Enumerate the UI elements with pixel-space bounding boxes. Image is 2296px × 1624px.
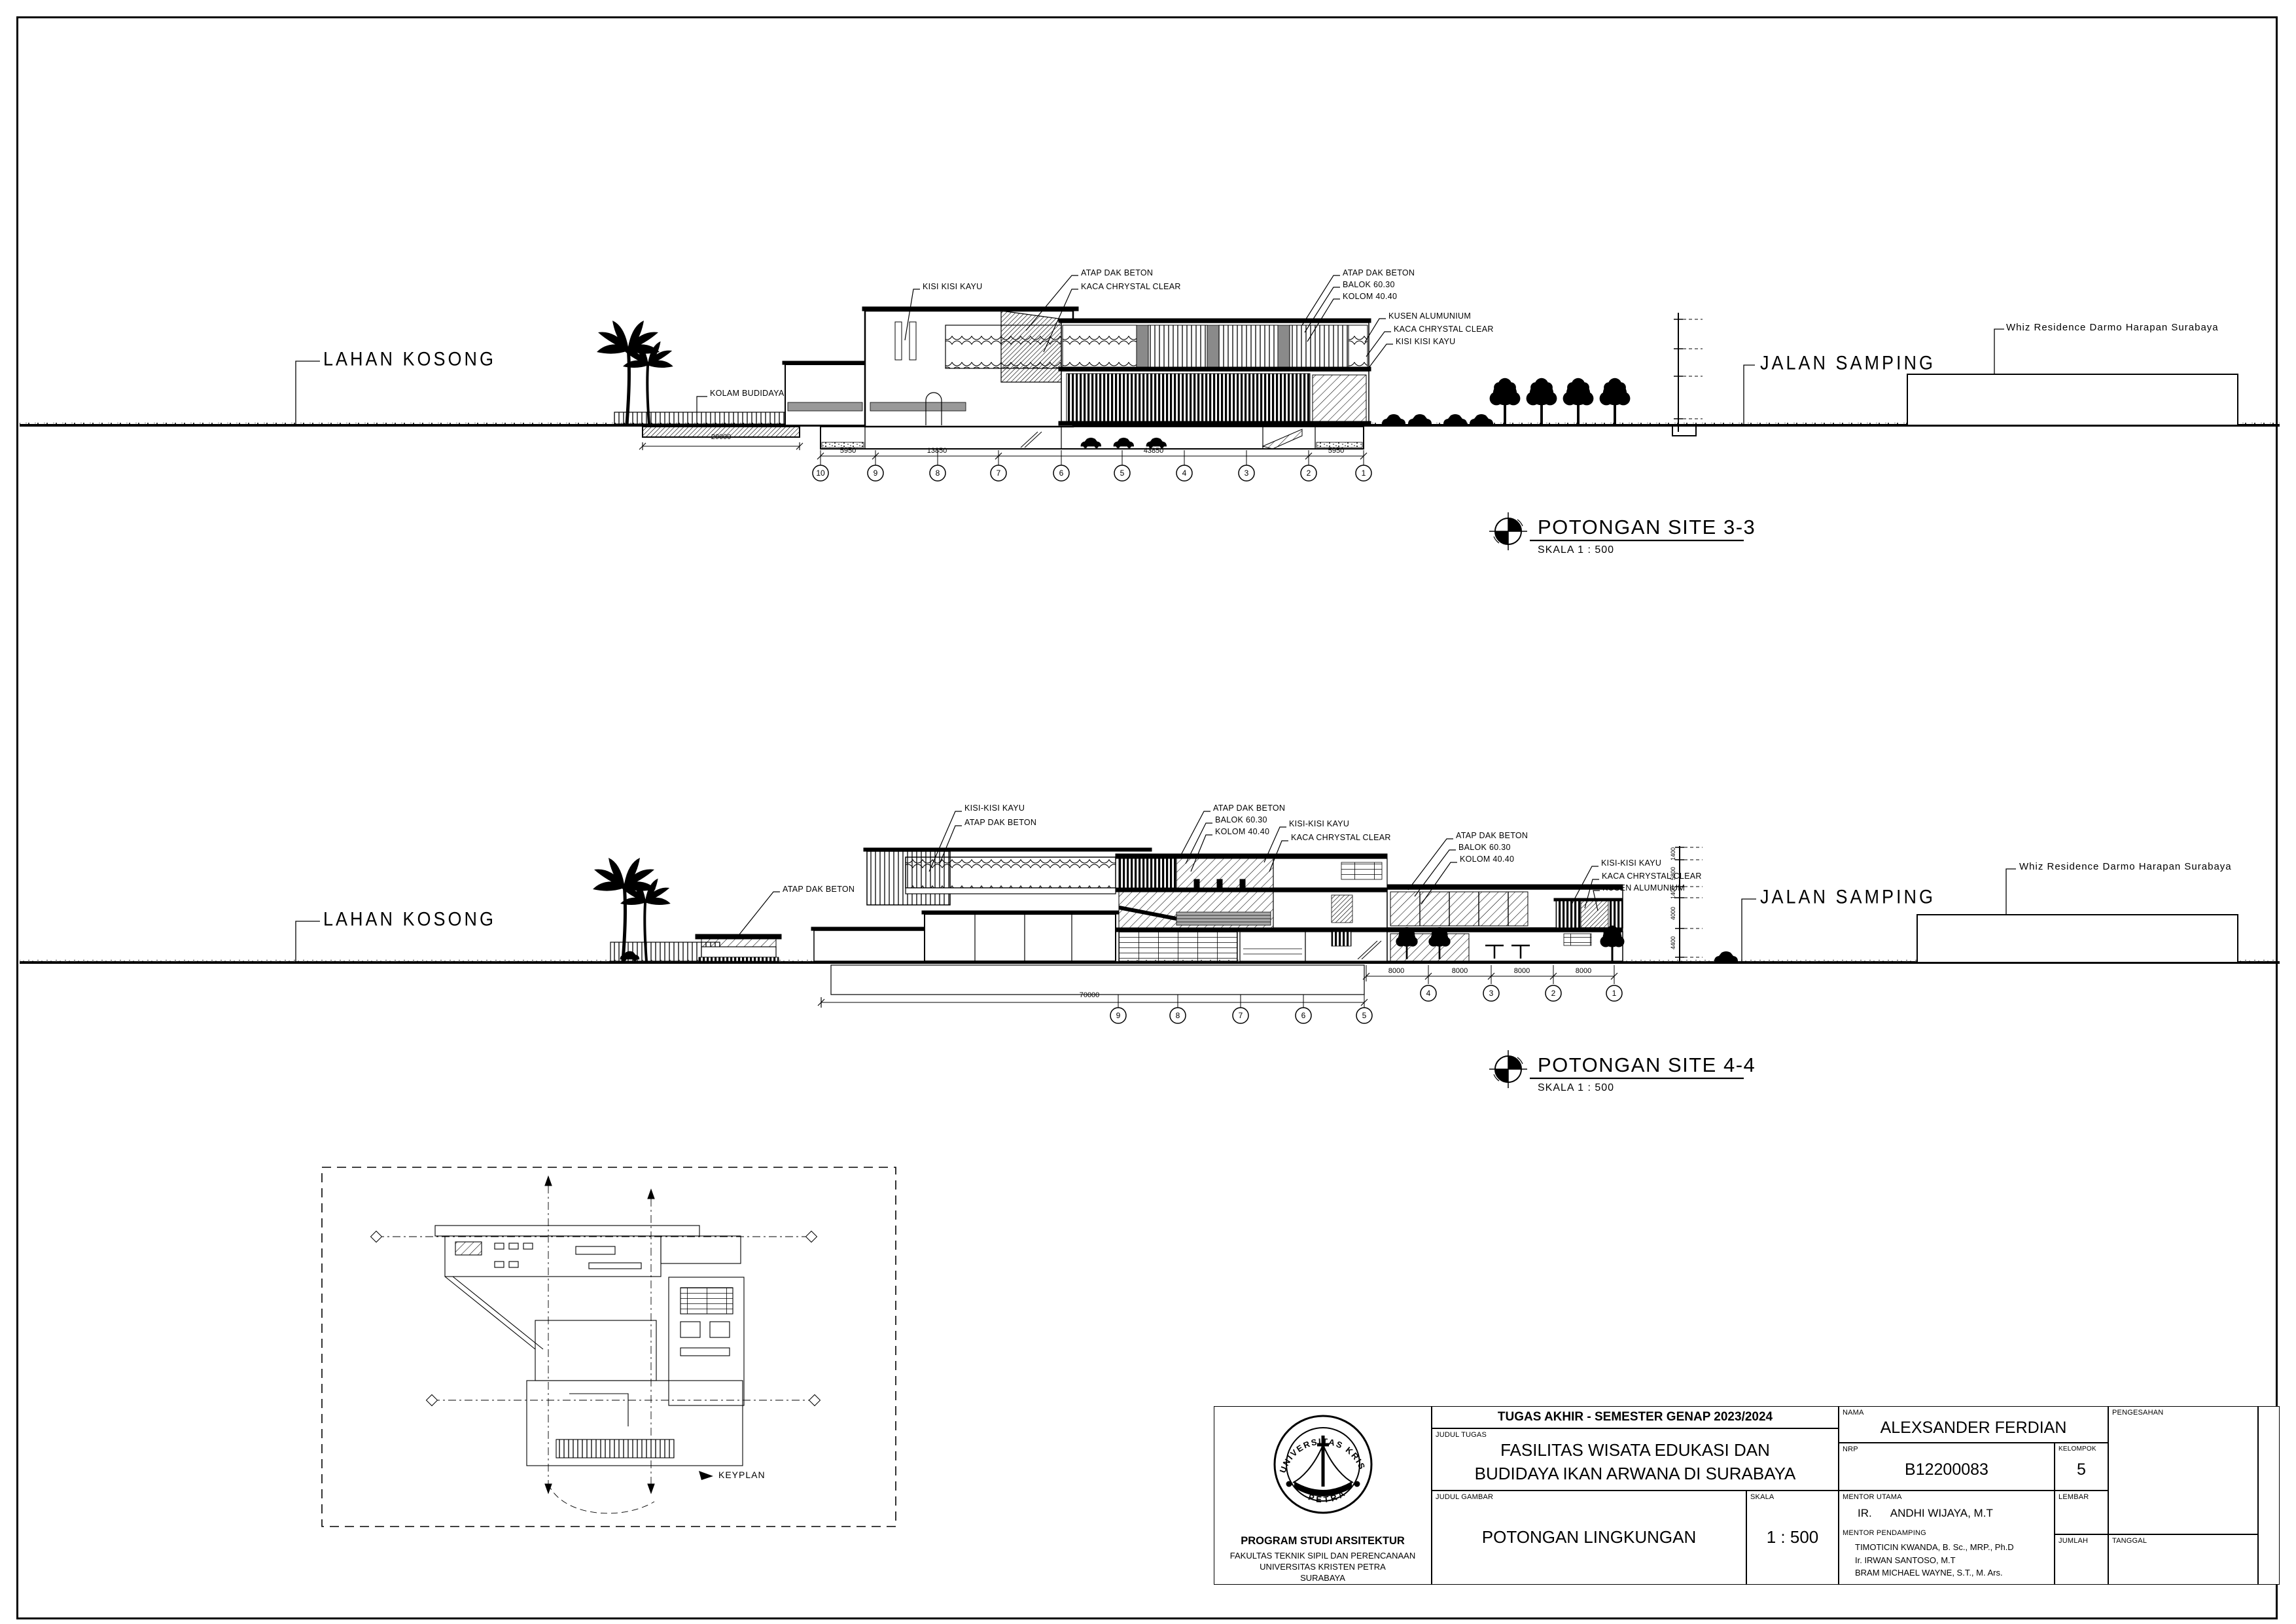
judul-tugas-line1: FASILITAS WISATA EDUKASI DAN xyxy=(1432,1440,1838,1460)
dim-33-4: 5950 xyxy=(1328,447,1344,455)
mentor-3: BRAM MICHAEL WAYNE, S.T., M. Ars. xyxy=(1855,1568,2003,1578)
svg-text:7: 7 xyxy=(997,468,1001,478)
dim-44-r4: 8000 xyxy=(1576,967,1591,975)
svg-text:4400: 4400 xyxy=(1670,936,1676,949)
mentor-cell: MENTOR UTAMA IR.ANDHI WIJAYA, M.T MENTOR… xyxy=(1839,1491,2055,1585)
nama-label: NAMA xyxy=(1843,1409,1864,1417)
label-lahan-kosong-33: LAHAN KOSONG xyxy=(323,349,496,370)
building-33 xyxy=(783,307,1371,449)
section-33-scale: SKALA 1 : 500 xyxy=(1538,544,1614,556)
callout-atap-pavilion: ATAP DAK BETON xyxy=(783,885,855,894)
pengesahan-label: PENGESAHAN xyxy=(2112,1409,2163,1417)
callout-balok-44M: BALOK 60.30 xyxy=(1215,815,1267,824)
tanggal-cell: TANGGAL xyxy=(2108,1534,2258,1585)
grid-numbers-44-left: 9 8 7 6 5 xyxy=(1116,1011,1367,1020)
dim-44-left: 70000 xyxy=(1080,991,1100,999)
svg-text:4: 4 xyxy=(1182,468,1187,478)
svg-text:1: 1 xyxy=(1612,989,1617,998)
label-jalan-samping-44: JALAN SAMPING xyxy=(1760,887,1935,908)
north-compass-33 xyxy=(1489,512,1527,550)
callout-balok-44R: BALOK 60.30 xyxy=(1458,843,1511,852)
svg-text:8: 8 xyxy=(1176,1011,1180,1020)
svg-text:9: 9 xyxy=(1116,1011,1121,1020)
kelompok-label: KELOMPOK xyxy=(2058,1445,2096,1453)
callout-kisi-44M2: KISI-KISI KAYU xyxy=(1289,819,1349,828)
svg-text:3: 3 xyxy=(1489,989,1494,998)
keyplan-drawing xyxy=(322,1167,896,1527)
judul-tugas-cell: JUDUL TUGAS FASILITAS WISATA EDUKASI DAN… xyxy=(1432,1428,1839,1491)
institution-universitas: UNIVERSITAS KRISTEN PETRA xyxy=(1214,1562,1431,1572)
section-44-scale: SKALA 1 : 500 xyxy=(1538,1082,1614,1094)
svg-text:7: 7 xyxy=(1239,1011,1243,1020)
kelompok-value: 5 xyxy=(2055,1460,2108,1479)
whiz-building-44 xyxy=(1917,915,2238,962)
right-strip-cell xyxy=(2258,1406,2280,1585)
dim-33-3: 43850 xyxy=(1144,447,1164,455)
grid-numbers-44-right: 4 3 2 1 xyxy=(1426,989,1617,998)
callout-atap-dak-beton-33b: ATAP DAK BETON xyxy=(1343,268,1415,277)
judul-gambar-label: JUDUL GAMBAR xyxy=(1436,1493,1493,1501)
callout-balok-33: BALOK 60.30 xyxy=(1343,280,1395,289)
level-staff-44 xyxy=(1675,846,1703,962)
callout-kolom-44M: KOLOM 40.40 xyxy=(1215,827,1269,836)
label-kolam-budidaya: KOLAM BUDIDAYA xyxy=(710,389,784,398)
svg-text:9: 9 xyxy=(874,468,878,478)
university-logo: UNIVERSITAS KRISTEN PETRA xyxy=(1271,1412,1375,1517)
skala-cell: SKALA 1 : 500 xyxy=(1746,1491,1839,1585)
callout-kisi-kisi-kayu-33b: KISI KISI KAYU xyxy=(1396,337,1456,346)
label-whiz-44: Whiz Residence Darmo Harapan Surabaya xyxy=(2019,861,2232,872)
callout-kaca-chrystal-33b: KACA CHRYSTAL CLEAR xyxy=(1394,325,1494,334)
grid-33 xyxy=(813,450,1371,481)
callout-atap-44M: ATAP DAK BETON xyxy=(1213,803,1285,813)
whiz-building-33 xyxy=(1907,374,2238,425)
svg-text:4: 4 xyxy=(1426,989,1431,998)
institution-fakultas: FAKULTAS TEKNIK SIPIL DAN PERENCANAAN xyxy=(1214,1551,1431,1561)
skala-value: 1 : 500 xyxy=(1747,1527,1838,1547)
svg-text:1: 1 xyxy=(1362,468,1366,478)
dim-44-r3: 8000 xyxy=(1514,967,1530,975)
jumlah-cell: JUMLAH xyxy=(2055,1534,2108,1585)
institution-kota: SURABAYA xyxy=(1214,1573,1431,1583)
judul-gambar-value: POTONGAN LINGKUNGAN xyxy=(1432,1527,1746,1547)
nrp-cell: NRP B12200083 xyxy=(1839,1443,2055,1491)
building-44 xyxy=(811,848,1624,961)
svg-text:5: 5 xyxy=(1120,468,1125,478)
nama-value: ALEXSANDER FERDIAN xyxy=(1839,1419,2108,1438)
judul-tugas-line2: BUDIDAYA IKAN ARWANA DI SURABAYA xyxy=(1432,1464,1838,1484)
mentor-1: TIMOTICIN KWANDA, B. Sc., MRP., Ph.D xyxy=(1855,1542,2014,1552)
svg-text:5: 5 xyxy=(1362,1011,1367,1020)
dim-33-1: 5950 xyxy=(840,447,856,455)
keyplan-label: KEYPLAN xyxy=(718,1470,766,1480)
staff-dims-44: 1400 5800 1400 4000 4400 xyxy=(1670,847,1676,949)
dim-44-r2: 8000 xyxy=(1452,967,1468,975)
label-lahan-kosong-44: LAHAN KOSONG xyxy=(323,909,496,930)
callout-kusen-44R2: KUSEN ALUMUNIUM xyxy=(1602,883,1685,892)
titleblock-header: TUGAS AKHIR - SEMESTER GENAP 2023/2024 xyxy=(1432,1410,1838,1424)
svg-text:3: 3 xyxy=(1245,468,1249,478)
header-cell: TUGAS AKHIR - SEMESTER GENAP 2023/2024 xyxy=(1432,1406,1839,1428)
callout-kisi-kisi-44L: KISI-KISI KAYU xyxy=(964,803,1025,813)
level-staff-33 xyxy=(1672,313,1703,436)
dim-44-r1: 8000 xyxy=(1388,967,1404,975)
svg-text:6: 6 xyxy=(1059,468,1064,478)
callout-kolom-44R: KOLOM 40.40 xyxy=(1460,855,1514,864)
section-4-4-drawing: 9 8 7 6 5 4 3 2 1 1400 xyxy=(20,811,2280,1088)
callout-kolom-33: KOLOM 40.40 xyxy=(1343,292,1397,301)
kelompok-cell: KELOMPOK 5 xyxy=(2055,1443,2108,1491)
judul-gambar-cell: JUDUL GAMBAR POTONGAN LINGKUNGAN xyxy=(1432,1491,1746,1585)
title-block: UNIVERSITAS KRISTEN PETRA PROGRAM STUDI … xyxy=(1214,1406,2280,1585)
lembar-label: LEMBAR xyxy=(2058,1493,2089,1501)
lembar-cell: LEMBAR xyxy=(2055,1491,2108,1534)
dim-kolam: 20000 xyxy=(711,433,732,441)
svg-text:10: 10 xyxy=(816,468,825,478)
section-33-title: POTONGAN SITE 3-3 xyxy=(1538,516,1756,539)
callout-kaca-chrystal-33a: KACA CHRYSTAL CLEAR xyxy=(1081,282,1181,291)
callout-kaca-44R2: KACA CHRYSTAL CLEAR xyxy=(1602,872,1702,881)
svg-text:4000: 4000 xyxy=(1670,907,1676,920)
svg-text:2: 2 xyxy=(1307,468,1311,478)
grid-numbers-33: 10 9 8 7 6 5 4 3 2 1 xyxy=(816,468,1366,478)
institution-cell: UNIVERSITAS KRISTEN PETRA PROGRAM STUDI … xyxy=(1214,1406,1432,1585)
callout-kisi-kisi-kayu-33: KISI KISI KAYU xyxy=(923,282,983,291)
svg-text:1400: 1400 xyxy=(1670,847,1676,860)
keyplan-arrow-icon xyxy=(699,1471,713,1480)
section-3-3-drawing: 10 9 8 7 6 5 4 3 2 1 xyxy=(20,275,2280,550)
callout-kisi-44R2: KISI-KISI KAYU xyxy=(1601,858,1661,868)
svg-text:2: 2 xyxy=(1551,989,1556,998)
tanggal-label: TANGGAL xyxy=(2112,1537,2147,1545)
jumlah-label: JUMLAH xyxy=(2058,1537,2088,1545)
drawing-canvas: 10 9 8 7 6 5 4 3 2 1 xyxy=(0,0,2296,1624)
label-jalan-samping-33: JALAN SAMPING xyxy=(1760,353,1935,374)
callout-atap-dak-beton-33a: ATAP DAK BETON xyxy=(1081,268,1153,277)
nrp-label: NRP xyxy=(1843,1445,1858,1453)
pengesahan-cell: PENGESAHAN xyxy=(2108,1406,2258,1534)
callout-atap-44R: ATAP DAK BETON xyxy=(1456,831,1528,840)
nama-cell: NAMA ALEXSANDER FERDIAN xyxy=(1839,1406,2108,1443)
judul-tugas-label: JUDUL TUGAS xyxy=(1436,1431,1487,1439)
mentor-utama-value: IR.ANDHI WIJAYA, M.T xyxy=(1858,1507,1993,1520)
svg-text:8: 8 xyxy=(936,468,940,478)
label-whiz-33: Whiz Residence Darmo Harapan Surabaya xyxy=(2006,322,2219,333)
callout-kaca-44M2: KACA CHRYSTAL CLEAR xyxy=(1291,833,1391,842)
north-compass-44 xyxy=(1489,1050,1527,1088)
mentor-pendamping-label: MENTOR PENDAMPING xyxy=(1843,1529,1926,1537)
institution-program: PROGRAM STUDI ARSITEKTUR xyxy=(1214,1535,1431,1547)
skala-label: SKALA xyxy=(1750,1493,1774,1501)
nrp-value: B12200083 xyxy=(1839,1460,2054,1479)
mentor-2: Ir. IRWAN SANTOSO, M.T xyxy=(1855,1555,1956,1565)
svg-text:6: 6 xyxy=(1301,1011,1306,1020)
mentor-utama-label: MENTOR UTAMA xyxy=(1843,1493,1902,1501)
callout-kusen-33: KUSEN ALUMUNIUM xyxy=(1388,311,1471,321)
section-44-title: POTONGAN SITE 4-4 xyxy=(1538,1053,1756,1077)
callout-atap-44L: ATAP DAK BETON xyxy=(964,818,1036,827)
dim-33-2: 13850 xyxy=(927,447,947,455)
